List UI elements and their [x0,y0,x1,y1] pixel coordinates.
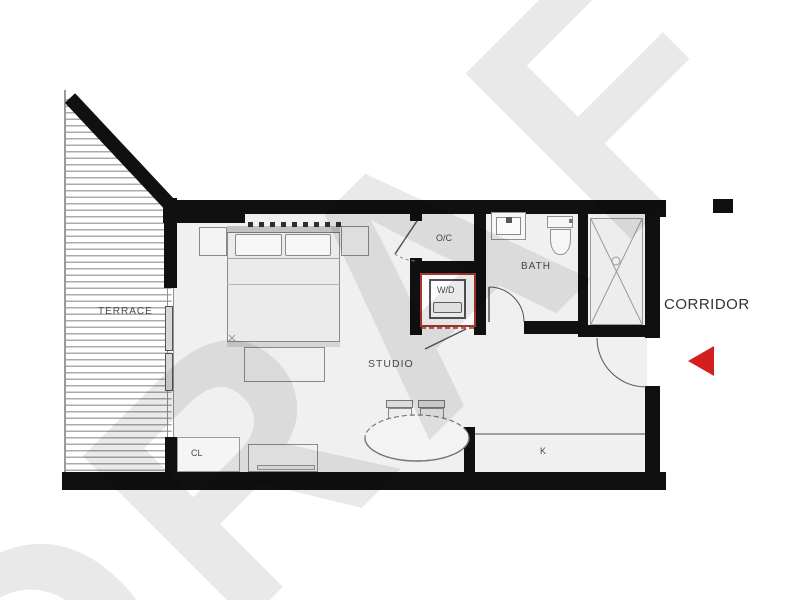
headboard-slat [303,222,308,227]
nightstand-left [199,227,227,256]
open-closet-label: O/C [436,233,452,243]
closet-label: CL [191,448,203,458]
floor-plan: TERRACE CL STUDIO O/C W/D BATH K CORRIDO… [0,0,800,600]
pillow [285,234,331,256]
corridor-marker-square [713,199,733,213]
chair-seat [420,408,444,432]
headboard-slat [259,222,264,227]
headboard-slat [314,222,319,227]
sliding-door-panel [165,353,173,391]
terrace-label: TERRACE [98,306,153,317]
studio-label: STUDIO [368,358,414,370]
pillow [235,234,282,256]
chair-seat [388,408,412,432]
shower-enclosure [590,218,643,325]
kitchen-counter-line [475,433,645,435]
bath-label: BATH [521,261,551,272]
entry-arrow-icon [688,346,714,376]
kitchen-label: K [540,446,546,456]
closet-cl-box [177,437,240,472]
wall-bath-bottom [524,321,580,334]
nightstand-right [341,226,369,256]
headboard-slat [325,222,330,227]
terrace-edge-line [64,90,66,472]
dresser-tray [257,465,315,470]
wall-oc-stub [410,205,422,221]
wall-right-upper [645,200,660,338]
wall-kitchen-stub [464,427,475,473]
wall-shower-bottom [578,325,660,337]
washer-dryer-drawer [433,302,462,313]
wall-bath-shower-divider [578,214,588,328]
headboard-slat [270,222,275,227]
headboard-slat [292,222,297,227]
headboard-slat [281,222,286,227]
bed-headboard [227,226,340,233]
corridor-label: CORRIDOR [664,296,750,313]
bed-bench [244,347,325,382]
washer-dryer-label: W/D [437,285,455,295]
bed-blanket-line [227,284,340,285]
terrace-decking-hatch [66,94,176,472]
bed-sheet-line [227,258,340,259]
toilet-button-icon [569,219,573,223]
headboard-slat [248,222,253,227]
wall-right-lower [645,386,660,474]
sliding-door-panel [165,306,173,351]
chair-back [386,400,413,408]
wall-bottom [62,472,666,490]
chair-back [418,400,445,408]
faucet-icon [506,217,512,223]
wall-left-upper [164,198,177,288]
